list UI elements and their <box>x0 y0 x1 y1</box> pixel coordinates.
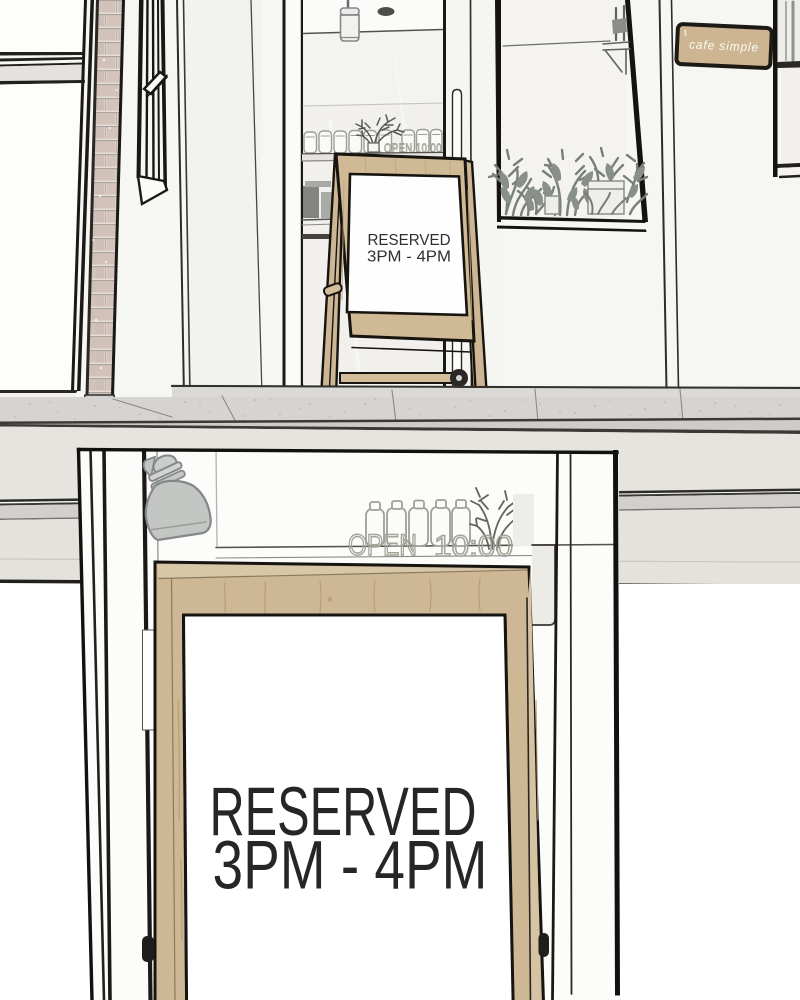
svg-text:RESERVED: RESERVED <box>368 232 451 249</box>
svg-text:3PM - 4PM: 3PM - 4PM <box>367 249 451 266</box>
svg-text:10:00: 10:00 <box>434 530 513 563</box>
svg-text:3PM - 4PM: 3PM - 4PM <box>213 827 488 904</box>
svg-text:OPEN: OPEN <box>348 529 417 562</box>
